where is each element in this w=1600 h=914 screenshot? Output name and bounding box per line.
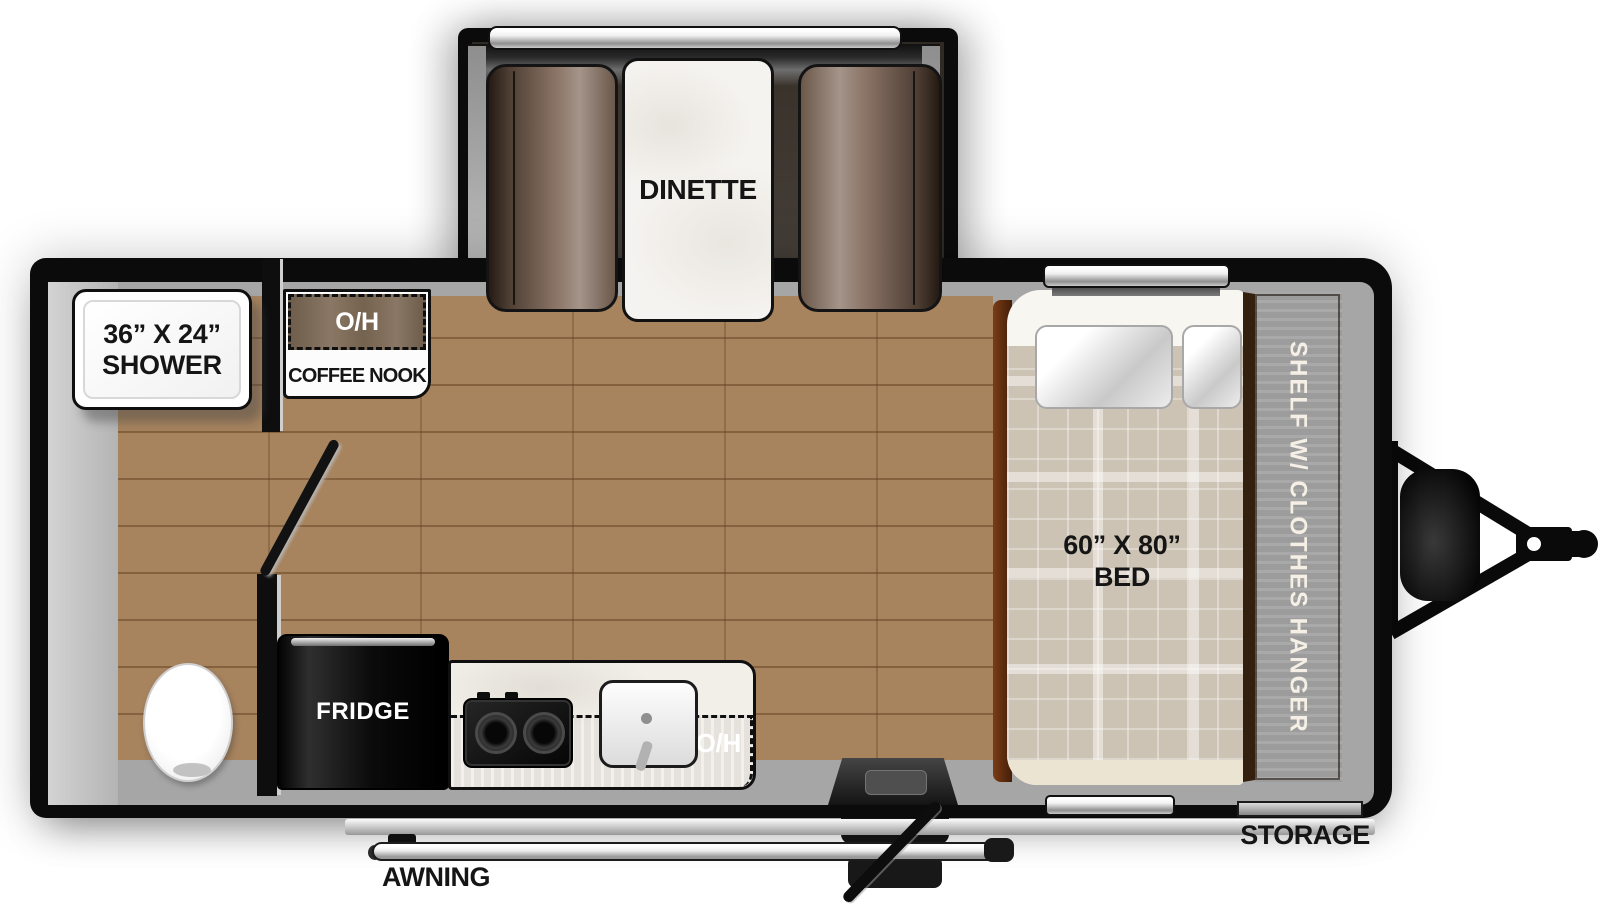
cushion-seam — [913, 71, 915, 305]
bathroom-wall-lower — [257, 574, 277, 796]
bed: 60” X 80”BED — [1007, 290, 1244, 785]
awning-end-cap-right — [984, 838, 1014, 862]
cushion-seam — [513, 71, 515, 305]
kitchen-oh-label: O/H — [696, 728, 741, 759]
awning-label: AWNING — [382, 862, 542, 893]
coffee-nook-label: COFFEE NOOK — [286, 365, 428, 388]
bathroom-wall-upper — [262, 258, 280, 432]
shelf-label: SHELF W/ CLOTHES HANGER — [1255, 294, 1340, 780]
awning-rail — [345, 819, 1375, 835]
underbed-window — [1045, 795, 1175, 816]
dinette-table: DINETTE — [622, 58, 774, 322]
bedroom-window-recess — [1052, 288, 1220, 296]
pillow — [1035, 325, 1173, 409]
sink-drain-icon — [641, 713, 652, 724]
pillow — [1182, 325, 1242, 409]
kitchen-sink — [599, 680, 698, 768]
stove-knob — [477, 692, 490, 699]
fridge-label: FRIDGE — [279, 636, 447, 788]
toilet-base — [173, 763, 211, 777]
storage-hatch-door — [1237, 801, 1363, 817]
floorplan-canvas: DINETTE 36” X 24”SHOWER O/H COFFEE NOOK … — [0, 0, 1600, 914]
fridge: FRIDGE — [277, 634, 449, 790]
dinette-window — [488, 26, 902, 50]
burner-icon — [523, 712, 565, 754]
coffee-nook-oh-label: O/H — [291, 297, 423, 347]
bedroom-window — [1043, 264, 1230, 288]
storage-label: STORAGE — [1230, 820, 1380, 851]
bed-label: 60” X 80”BED — [1017, 530, 1227, 594]
stove-knob — [505, 692, 518, 699]
dinette-label: DINETTE — [625, 61, 771, 319]
coupler-ball — [1570, 530, 1598, 558]
safety-chain-ring — [1524, 534, 1544, 554]
awning-roller-bar — [372, 842, 1008, 861]
shower: 36” X 24”SHOWER — [72, 289, 252, 410]
hitch-a-frame — [1388, 441, 1598, 633]
shelf-with-clothes-hanger: SHELF W/ CLOTHES HANGER — [1243, 292, 1342, 782]
slideout-wall-left — [468, 46, 486, 278]
bed-foot-band — [1007, 760, 1244, 785]
shower-label: 36” X 24”SHOWER — [75, 292, 249, 407]
coffee-nook-overhead-cabinet: O/H — [288, 294, 426, 350]
stove-cooktop — [463, 698, 573, 768]
dinette-bench-right — [798, 64, 942, 312]
propane-tank — [1400, 469, 1480, 601]
entry-step-pad — [865, 770, 927, 795]
coffee-nook: O/H COFFEE NOOK — [283, 289, 431, 399]
trailer-hitch — [1388, 423, 1600, 643]
dinette-bench-left — [486, 64, 618, 312]
burner-icon — [475, 712, 517, 754]
sink-faucet — [635, 740, 654, 772]
